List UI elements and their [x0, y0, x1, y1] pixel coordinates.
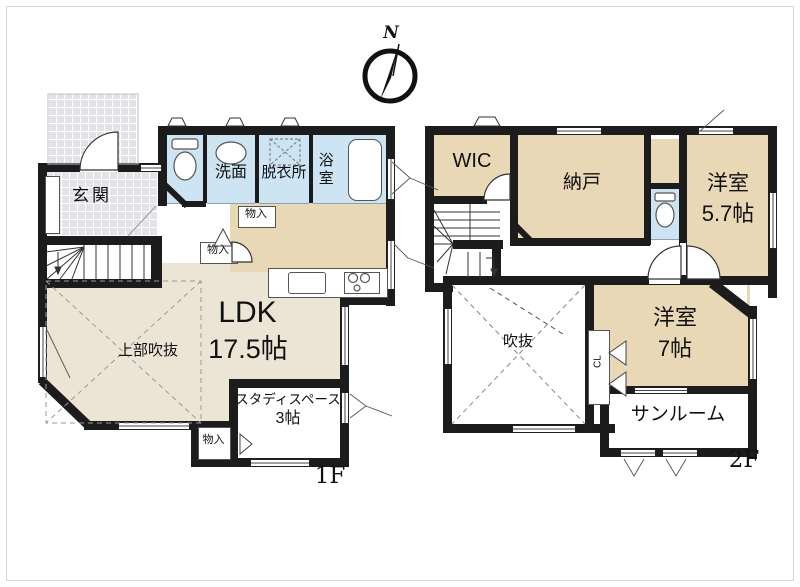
window: [444, 308, 452, 365]
study-size-label: 3帖: [234, 410, 342, 428]
wall: [510, 133, 518, 245]
stove-icon: [344, 272, 380, 294]
floor2-label: 2F: [722, 448, 766, 474]
window: [140, 164, 162, 172]
datsuisho-label: 脱衣所: [255, 165, 313, 182]
door-gap: [680, 243, 686, 275]
wall: [646, 183, 679, 189]
wall: [182, 201, 206, 207]
ldk-label: LDK: [200, 296, 295, 330]
window: [387, 240, 395, 290]
fukinuke-void: [452, 285, 585, 424]
wall: [453, 240, 503, 249]
wall: [510, 238, 650, 246]
wic-label: WIC: [436, 150, 508, 172]
jobu-fukinuke-label: 上部吹抜: [98, 343, 198, 360]
yoshitsu57-label: 洋室: [690, 172, 766, 196]
compass-n-label: N: [381, 24, 401, 43]
window: [387, 158, 395, 200]
floor1-label: 1F: [308, 464, 352, 490]
wall: [191, 459, 235, 467]
ldk-size-label: 17.5帖: [192, 334, 304, 364]
kitchen-sink: [288, 272, 326, 294]
wall: [38, 236, 162, 245]
study-label: スタディスペース: [234, 392, 342, 407]
bathtub-icon: [348, 139, 382, 201]
monoire-label-a: 物入: [238, 208, 274, 220]
window: [250, 459, 310, 467]
window: [341, 392, 349, 424]
wall: [38, 279, 162, 288]
cl-label: CL: [592, 350, 603, 374]
senmen-label: 洗面: [207, 164, 255, 182]
shoe-cabinet: [45, 176, 60, 234]
wall: [229, 379, 349, 388]
yoshitsu7-label: 洋室: [640, 306, 710, 331]
yoshitsu7-size-label: 7帖: [640, 337, 710, 362]
fukinuke-label: 吹抜: [480, 334, 556, 351]
door-gap: [649, 277, 680, 284]
wall: [151, 236, 162, 288]
toilet-2f-room: [651, 189, 679, 240]
toilet-1f-room: [167, 135, 203, 204]
closet-above-toilet: [651, 139, 679, 183]
porch-tiles: [48, 94, 138, 164]
monoire-label-b: 物入: [200, 244, 236, 256]
window: [662, 449, 698, 457]
window: [556, 127, 602, 135]
window: [749, 318, 757, 380]
sunroom-label: サンルーム: [614, 404, 742, 425]
wall: [160, 126, 393, 135]
nando-label: 納戸: [552, 172, 612, 193]
genkan-label: 玄関: [60, 186, 124, 205]
window: [39, 326, 47, 378]
monoire-label-c: 物入: [198, 434, 229, 446]
yoshitsu57-size-label: 5.7帖: [684, 202, 772, 227]
window: [634, 387, 688, 394]
floorplan-scene: N 玄関 洗面 脱衣所 浴室 物入 物入 物入 上部吹抜 LDK 17.5帖 ス…: [0, 0, 800, 587]
wall: [644, 133, 651, 245]
window: [341, 306, 349, 366]
wall: [492, 249, 501, 285]
wall: [425, 126, 434, 292]
yokushitsu-label: 浴室: [316, 144, 333, 196]
window: [512, 425, 576, 433]
window: [698, 127, 734, 135]
wall: [425, 196, 487, 204]
window: [118, 422, 190, 430]
window: [620, 449, 656, 457]
stairs-1f-area: [46, 245, 152, 279]
